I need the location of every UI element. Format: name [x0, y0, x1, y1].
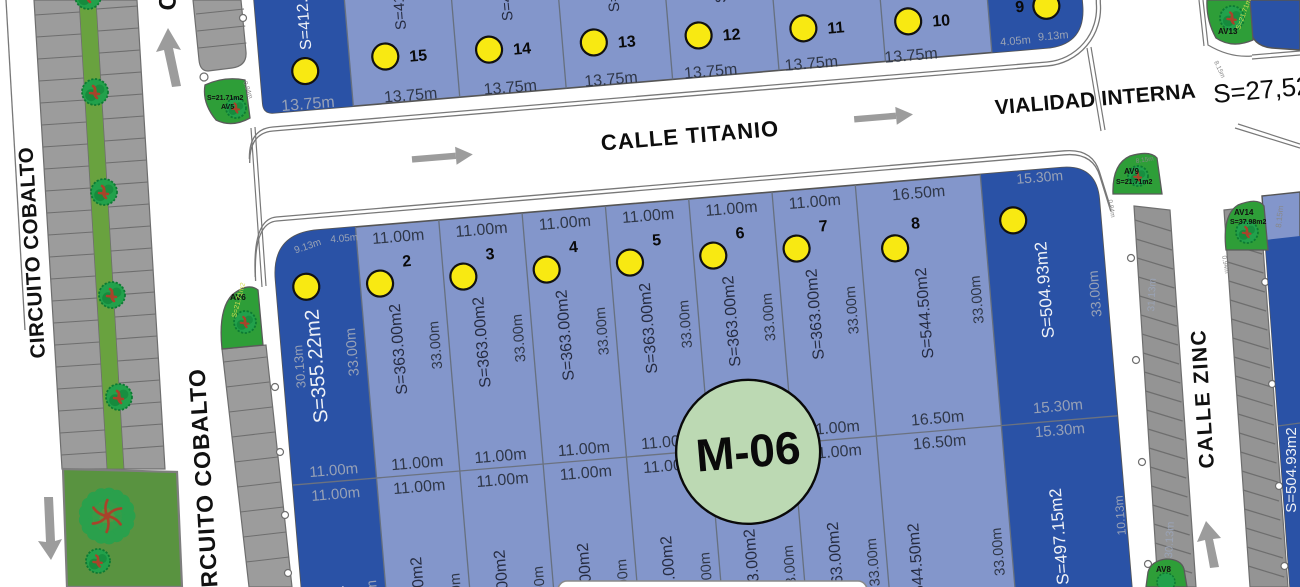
svg-text:AV9: AV9 [1124, 167, 1140, 176]
svg-text:30.13m: 30.13m [1163, 521, 1177, 558]
svg-text:2: 2 [402, 253, 412, 271]
svg-text:S=21.71m2: S=21.71m2 [207, 95, 243, 102]
svg-text:S=37.98m2: S=37.98m2 [1230, 219, 1266, 226]
svg-text:15: 15 [409, 47, 428, 65]
svg-text:6: 6 [735, 225, 745, 243]
svg-text:C: C [154, 0, 182, 11]
svg-text:4: 4 [568, 239, 578, 257]
svg-text:10: 10 [932, 12, 951, 30]
svg-text:12: 12 [722, 26, 741, 44]
svg-text:5: 5 [652, 232, 662, 250]
svg-text:13: 13 [617, 33, 636, 51]
svg-text:9.13m: 9.13m [1037, 29, 1068, 44]
svg-text:S=504.93m2: S=504.93m2 [1283, 427, 1300, 512]
svg-text:14: 14 [512, 40, 531, 58]
svg-text:AV5: AV5 [221, 104, 234, 111]
svg-text:M-06: M-06 [694, 421, 803, 482]
svg-text:S=21.71m2: S=21.71m2 [1116, 179, 1152, 186]
svg-text:31.13m: 31.13m [1146, 278, 1159, 312]
svg-text:4.05m: 4.05m [1000, 34, 1031, 49]
svg-text:3: 3 [485, 246, 495, 264]
svg-text:AV14: AV14 [1234, 208, 1254, 217]
svg-text:4.05m: 4.05m [330, 232, 359, 245]
svg-text:7: 7 [818, 218, 828, 236]
svg-text:11: 11 [827, 19, 845, 37]
svg-text:8: 8 [910, 215, 920, 233]
svg-text:9: 9 [1015, 0, 1025, 16]
